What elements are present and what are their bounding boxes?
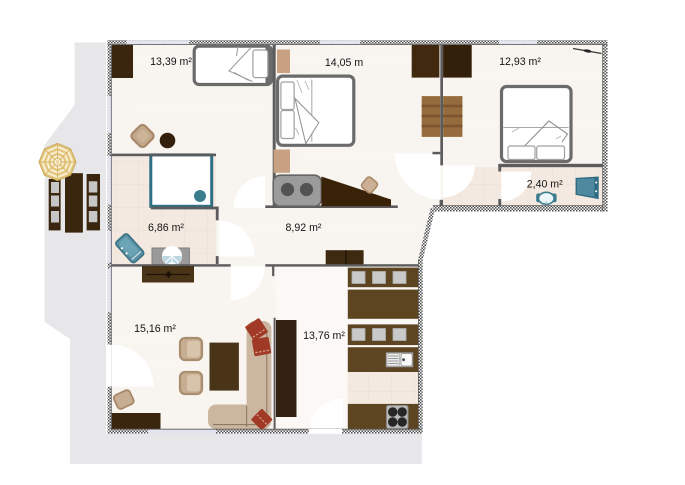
svg-text:8,92 m²: 8,92 m² (286, 222, 322, 234)
svg-text:12,93 m²: 12,93 m² (499, 56, 541, 68)
svg-text:14,05 m: 14,05 m (325, 57, 363, 69)
svg-text:6,86 m²: 6,86 m² (148, 222, 184, 234)
svg-text:2,40 m²: 2,40 m² (527, 179, 563, 191)
svg-text:13,39 m²: 13,39 m² (150, 56, 192, 68)
svg-text:15,16 m²: 15,16 m² (134, 323, 176, 335)
svg-text:13,76 m²: 13,76 m² (303, 330, 345, 342)
